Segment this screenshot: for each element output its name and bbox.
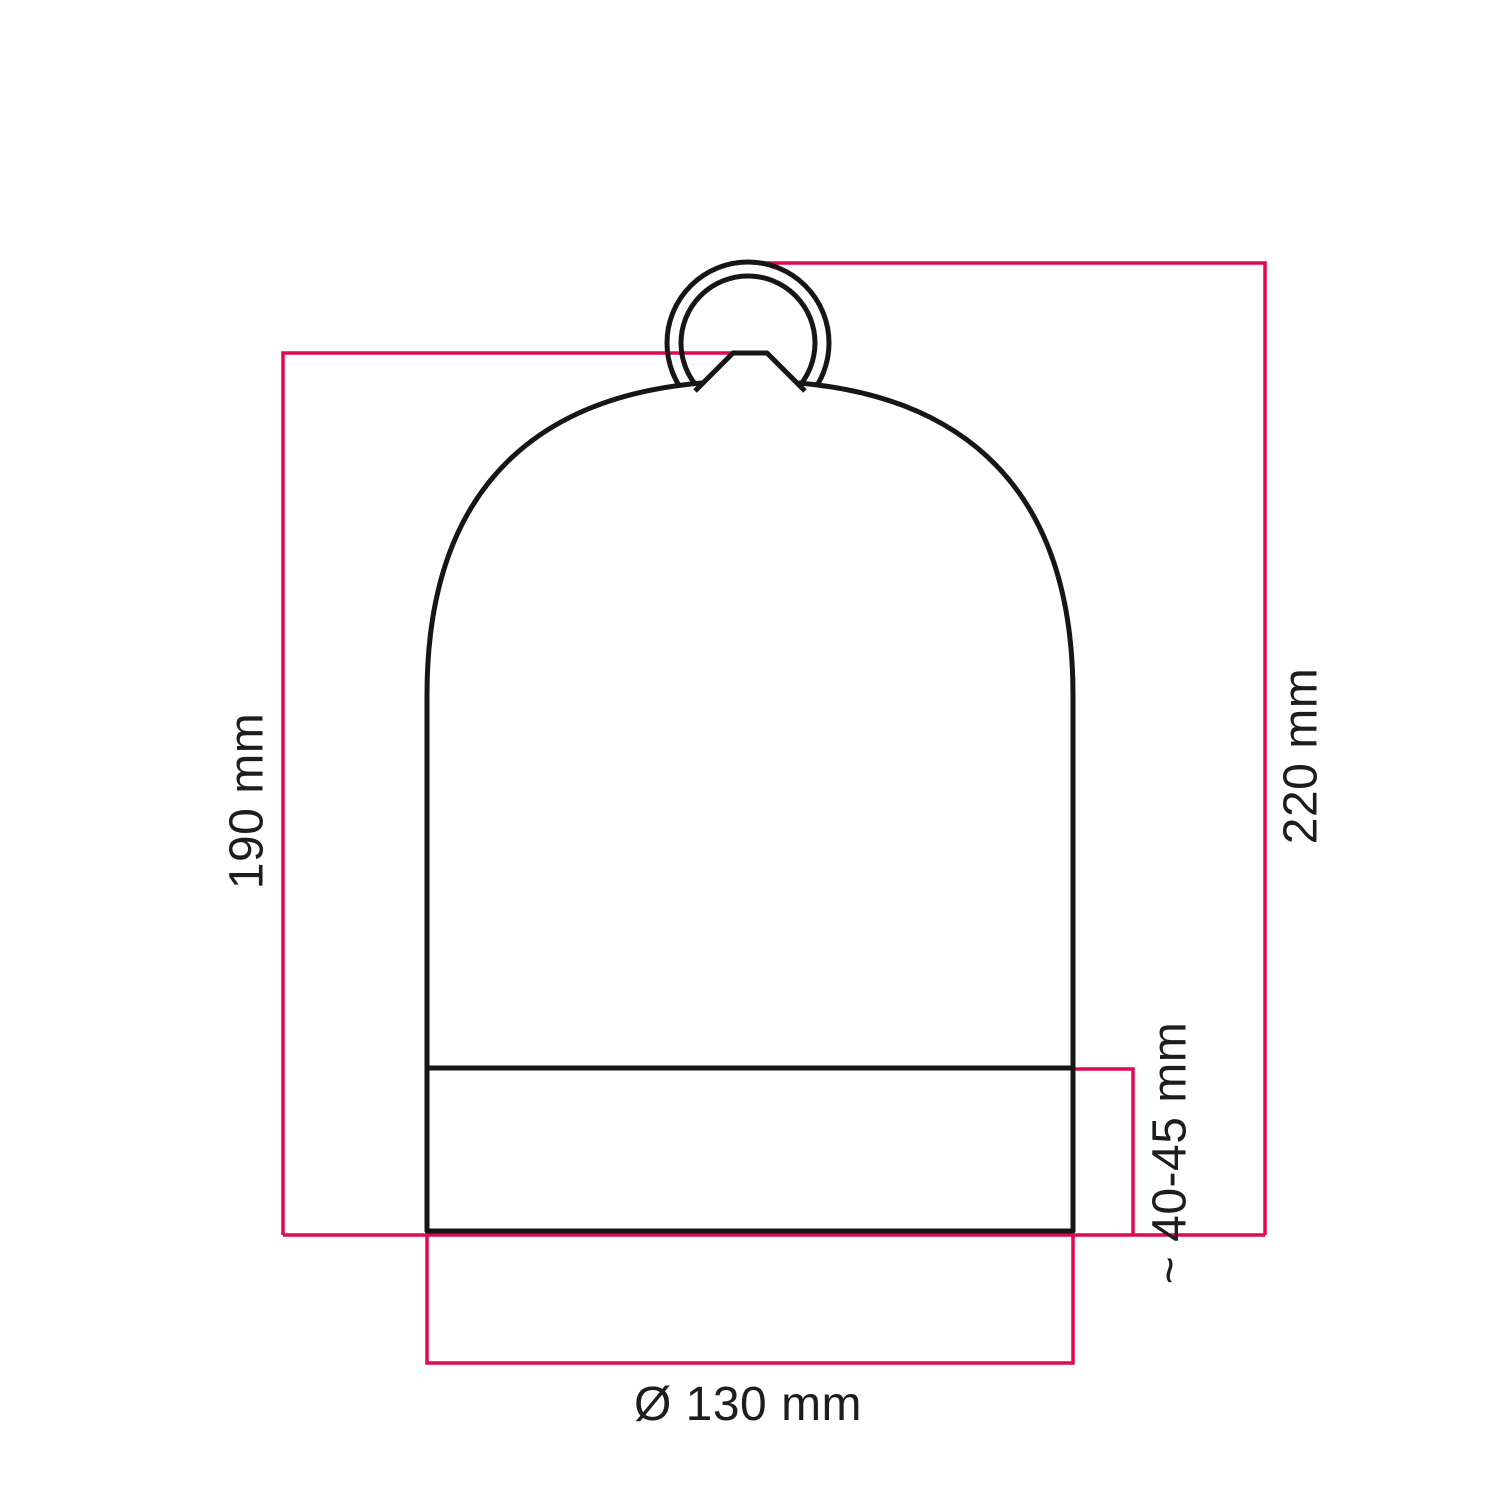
dimension-box-collar-40-45 (1073, 1069, 1133, 1235)
dimension-label-height-220: 220 mm (1275, 668, 1328, 844)
dimension-label-diameter-130: Ø 130 mm (634, 1378, 862, 1431)
technical-drawing-page: 190 mm 220 mm ~ 40-45 mm Ø 130 mm (0, 0, 1500, 1500)
dimension-label-collar-40-45: ~ 40-45 mm (1144, 1022, 1197, 1284)
bell-top-cap (695, 353, 805, 391)
bell-shade (427, 353, 1073, 1231)
bell-outline (427, 381, 1073, 1231)
bell-lampshade-dimension-diagram: 190 mm 220 mm ~ 40-45 mm Ø 130 mm (0, 0, 1500, 1500)
dimension-box-diameter-130 (427, 1235, 1073, 1363)
dimension-label-height-190: 190 mm (221, 713, 274, 889)
